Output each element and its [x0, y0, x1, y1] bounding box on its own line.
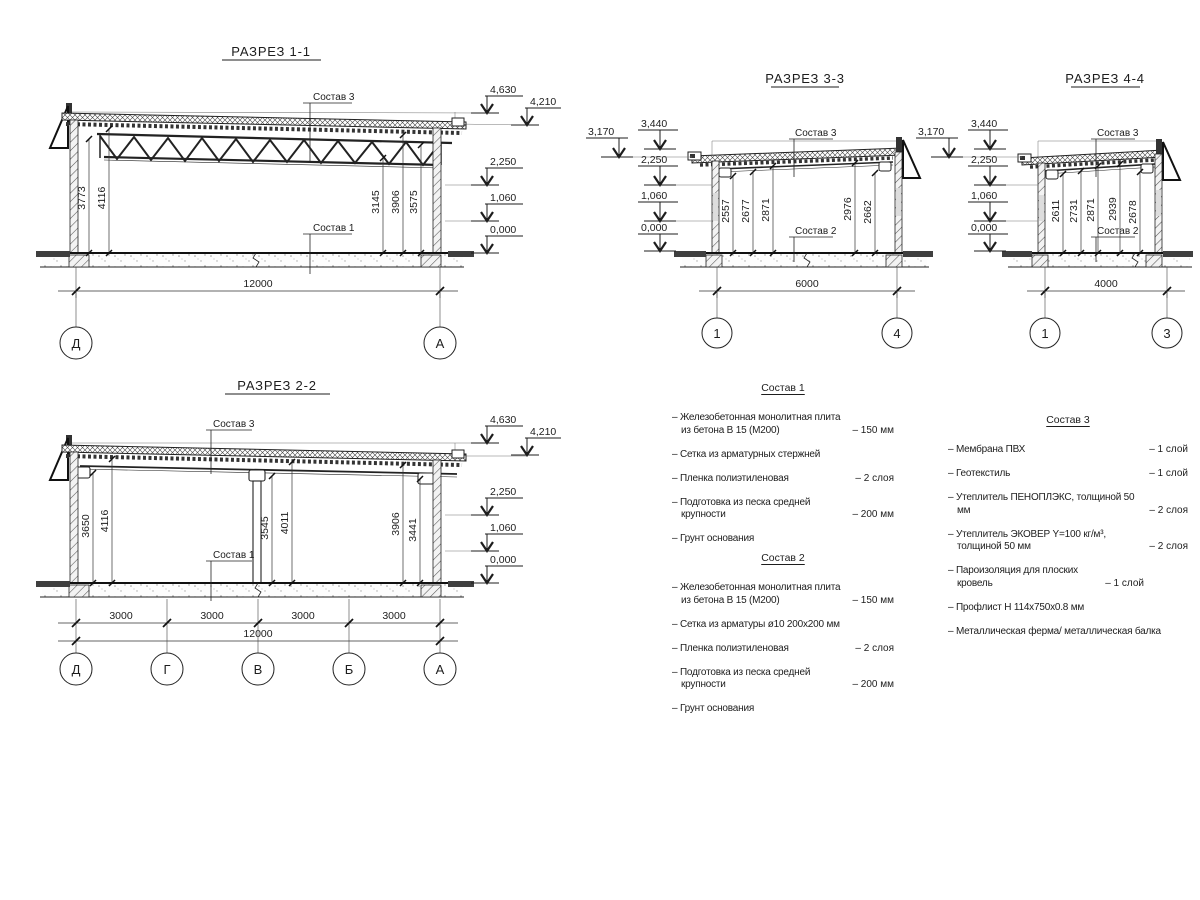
dim-label: 3906 [390, 190, 402, 214]
span-dim-label: 3000 [200, 610, 224, 622]
dim-label: 4116 [99, 510, 111, 533]
column-capital [249, 470, 265, 481]
grid-bubble-label: 4 [893, 326, 900, 341]
grid-bubble-label: Д [72, 662, 81, 677]
grid-bubble-label: В [254, 662, 263, 677]
elevation-label: 2,250 [971, 154, 997, 166]
column-capital [1141, 164, 1153, 173]
elevation-label: 3,170 [588, 126, 614, 138]
span-dim-label: 3000 [291, 610, 315, 622]
legend-sostav-2: Состав 2 – Железобетонная монолитная пли… [672, 552, 894, 727]
legend-item-text: – Железобетонная монолитная плита из бет… [672, 582, 844, 608]
legend-item-text: – Геотекстиль [948, 468, 1141, 481]
legend-item: – Пароизоляция для плоских кровель– 1 сл… [948, 565, 1188, 591]
legend-item: – Утеплитель ЭКОВЕР Y=100 кг/м³, толщино… [948, 529, 1188, 555]
callout-label: Состав 3 [313, 92, 355, 103]
total-dim-label: 6000 [795, 278, 819, 290]
legend-item: – Пленка полиэтиленовая– 2 слоя [672, 473, 894, 486]
legend-item-value: – 2 слоя [855, 473, 894, 486]
dim-label: 3650 [80, 514, 92, 538]
legend-item: – Утеплитель ПЕНОПЛЭКС, толщиной 50 мм– … [948, 492, 1188, 518]
section-3-3: РАЗРЕЗ 3-3 [586, 71, 933, 348]
dim-label: 3545 [259, 516, 271, 540]
dim-label: 2557 [720, 199, 732, 223]
elevation-label: 2,250 [490, 486, 516, 498]
legend-item-value: – 150 мм [852, 595, 894, 608]
legend-item: – Сетка из арматуры ø10 200х200 мм [672, 619, 894, 632]
column-capital [719, 168, 731, 177]
legend-item-text: – Профлист Н 114х750х0.8 мм [948, 602, 1180, 615]
dim-label: 2678 [1127, 200, 1139, 224]
dim-label: 2939 [1107, 197, 1119, 221]
dim-label: 2662 [862, 200, 874, 224]
legend-item-text: – Сетка из арматурных стержней [672, 449, 886, 462]
elevation-label: 2,250 [490, 156, 516, 168]
legend-item: – Мембрана ПВХ– 1 слой [948, 444, 1188, 457]
elevation-label: 1,060 [490, 522, 516, 534]
grid-bubble-label: 1 [1041, 326, 1048, 341]
legend-item-value: – 1 слой [1149, 468, 1188, 481]
elevation-label: 1,060 [641, 190, 667, 202]
elevation-label: 0,000 [971, 222, 997, 234]
callout-label: Состав 3 [795, 128, 837, 139]
legend-item-value: – 200 мм [852, 679, 894, 692]
elevation-label: 3,170 [918, 126, 944, 138]
legend-item: – Геотекстиль– 1 слой [948, 468, 1188, 481]
dim-label: 2611 [1050, 200, 1062, 223]
legend-item-text: – Подготовка из песка средней крупности [672, 667, 844, 693]
wall-right [433, 128, 441, 253]
legend-item-text: – Грунт основания [672, 533, 886, 546]
legend-sostav-1: Состав 1 – Железобетонная монолитная пли… [672, 382, 894, 557]
elevation-label: 0,000 [490, 224, 516, 236]
span-dim-label: 3000 [109, 610, 133, 622]
legend-item-value: – 2 слоя [855, 643, 894, 656]
legend-item-text: – Пароизоляция для плоских кровель [948, 565, 1097, 591]
dim-label: 2871 [760, 198, 772, 222]
legend-item-text: – Утеплитель ЭКОВЕР Y=100 кг/м³, толщино… [948, 529, 1141, 555]
parapet-triangle [50, 106, 68, 148]
callout-label: Состав 1 [213, 550, 255, 561]
span-dim-label: 3000 [382, 610, 406, 622]
dim-label: 3773 [76, 186, 88, 210]
grid-bubble-label: Г [163, 662, 170, 677]
callout-label: Состав 1 [313, 223, 355, 234]
legend-item-text: – Утеплитель ПЕНОПЛЭКС, толщиной 50 мм [948, 492, 1141, 518]
elevation-label: 3,440 [971, 118, 997, 130]
legend-item: – Грунт основания [672, 703, 894, 716]
legend-item-value: – 1 слой [1149, 444, 1188, 457]
elevation-label: 4,210 [530, 426, 556, 438]
legend-item: – Пленка полиэтиленовая– 2 слоя [672, 643, 894, 656]
legend-item-value: – 2 слоя [1149, 541, 1188, 554]
dim-label: 3145 [370, 190, 382, 214]
elevation-label: 0,000 [641, 222, 667, 234]
section-title: РАЗРЕЗ 4-4 [1065, 71, 1145, 86]
column-capital [1046, 170, 1058, 179]
legend-item: – Железобетонная монолитная плита из бет… [672, 582, 894, 608]
elevation-label: 4,630 [490, 84, 516, 96]
legend-item-text: – Металлическая ферма/ металлическая бал… [948, 626, 1180, 639]
section-1-1: РАЗРЕЗ 1-1 [36, 44, 561, 359]
callout-label: Состав 2 [795, 226, 837, 237]
callout-label: Состав 2 [1097, 226, 1139, 237]
legend-item-text: – Пленка полиэтиленовая [672, 643, 847, 656]
legend-item-text: – Железобетонная монолитная плита из бет… [672, 412, 844, 438]
legend-item: – Профлист Н 114х750х0.8 мм [948, 602, 1188, 615]
legend-item-value: – 2 слоя [1149, 505, 1188, 518]
callout-label: Состав 3 [213, 419, 255, 430]
elevation-label: 0,000 [490, 554, 516, 566]
floor-slab [36, 581, 474, 597]
legend-item-text: – Сетка из арматуры ø10 200х200 мм [672, 619, 886, 632]
elevation-label: 4,210 [530, 96, 556, 108]
parapet-triangle [50, 438, 68, 480]
grid-bubble-label: А [436, 662, 445, 677]
legend-item-text: – Грунт основания [672, 703, 886, 716]
legend-item-text: – Подготовка из песка средней крупности [672, 497, 844, 523]
grid-bubble-label: 1 [713, 326, 720, 341]
wall-right [433, 460, 441, 583]
roof-truss [97, 134, 452, 168]
legend-item: – Металлическая ферма/ металлическая бал… [948, 626, 1188, 639]
dim-label: 2871 [1085, 198, 1097, 222]
roof-slab [692, 148, 902, 163]
dim-ticks [730, 160, 878, 256]
wall-left [70, 452, 78, 583]
legend-item-value: – 150 мм [852, 425, 894, 438]
column-capital [879, 162, 891, 171]
dim-label: 4116 [96, 187, 108, 210]
total-dim-label: 12000 [243, 278, 272, 290]
floor-slab [36, 251, 474, 267]
callout-label: Состав 3 [1097, 128, 1139, 139]
elevation-label: 3,440 [641, 118, 667, 130]
dim-label: 3441 [407, 518, 419, 542]
legend-item-value: – 1 слой [1105, 578, 1144, 591]
legend-item: – Железобетонная монолитная плита из бет… [672, 412, 894, 438]
total-dim-label: 4000 [1094, 278, 1118, 290]
elevation-label: 1,060 [971, 190, 997, 202]
section-2-2: РАЗРЕЗ 2-2 [36, 378, 561, 685]
legend-item: – Подготовка из песка средней крупности–… [672, 667, 894, 693]
legend-title: Состав 3 [948, 414, 1188, 427]
legend-item-text: – Мембрана ПВХ [948, 444, 1141, 457]
legend-item: – Грунт основания [672, 533, 894, 546]
dim-label: 2976 [842, 197, 854, 221]
elevation-label: 2,250 [641, 154, 667, 166]
section-title: РАЗРЕЗ 1-1 [231, 44, 311, 59]
section-title: РАЗРЕЗ 2-2 [237, 378, 317, 393]
dim-label: 3906 [390, 512, 402, 536]
drawing-sheet: РАЗРЕЗ 1-1 [0, 0, 1200, 900]
legend-title: Состав 2 [672, 552, 894, 565]
grid-bubble-label: Д [72, 336, 81, 351]
grid-bubble-label: А [436, 336, 445, 351]
dim-label: 2731 [1068, 199, 1080, 223]
section-title: РАЗРЕЗ 3-3 [765, 71, 845, 86]
dim-label: 3575 [408, 190, 420, 214]
floor-slab [674, 251, 933, 267]
legend-title: Состав 1 [672, 382, 894, 395]
legend-item: – Подготовка из песка средней крупности–… [672, 497, 894, 523]
grid-bubble-label: Б [345, 662, 354, 677]
legend-item-value: – 200 мм [852, 509, 894, 522]
parapet-triangle [1163, 142, 1180, 180]
elevation-label: 1,060 [490, 192, 516, 204]
legend-item-text: – Пленка полиэтиленовая [672, 473, 847, 486]
section-4-4: РАЗРЕЗ 4-4 [916, 71, 1193, 348]
legend-sostav-3: Состав 3 – Мембрана ПВХ– 1 слой – Геотек… [948, 414, 1188, 649]
legend-item: – Сетка из арматурных стержней [672, 449, 894, 462]
dim-label: 2677 [740, 199, 752, 223]
dim-label: 4011 [279, 512, 291, 535]
grid-bubble-label: 3 [1163, 326, 1170, 341]
elevation-label: 4,630 [490, 414, 516, 426]
parapet-triangle [903, 140, 920, 178]
